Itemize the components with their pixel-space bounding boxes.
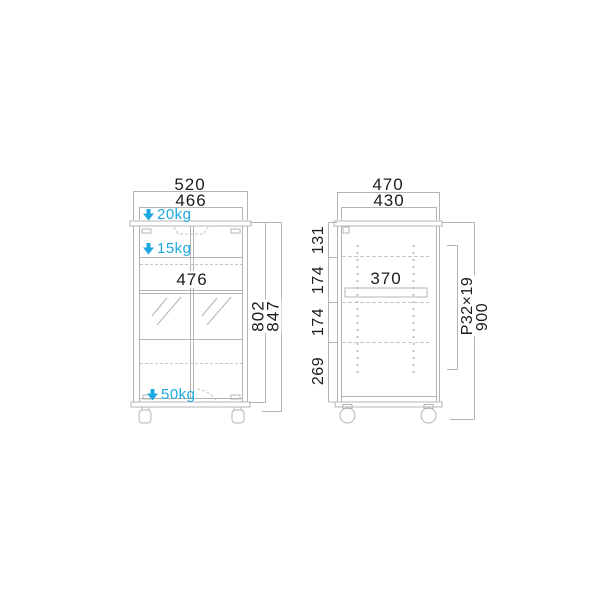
front-shelf-load-value: 15kg <box>157 241 192 256</box>
front-caster-left <box>139 407 151 423</box>
side-top-section-label: 131 <box>311 225 327 255</box>
front-shelf-load-label: 15kg <box>143 241 192 256</box>
hinge-top-right <box>231 229 240 233</box>
front-shelf-width-label: 476 <box>173 271 210 288</box>
down-arrow-icon <box>143 243 154 255</box>
side-cabinet-top-panel <box>334 221 442 226</box>
side-view-linework <box>329 193 475 420</box>
front-caster-right <box>232 407 244 423</box>
down-arrow-icon <box>143 209 154 221</box>
top-rail-detail <box>343 227 349 233</box>
cabinet-diagram-svg <box>0 0 600 600</box>
side-section-dim-lines <box>329 223 338 403</box>
down-arrow-icon <box>147 389 158 401</box>
door-swing-arc <box>197 389 217 402</box>
front-top-load-value: 20kg <box>157 207 192 222</box>
front-view-details <box>139 297 244 423</box>
side-shelf-depth-label: 370 <box>367 270 404 287</box>
side-bottom-section-label: 269 <box>311 356 327 386</box>
side-middle-section-label: 174 <box>311 307 327 337</box>
glass-hatch-right-door <box>202 297 231 325</box>
hole-pitch-dim-line <box>447 246 458 370</box>
side-upper-section-label: 174 <box>311 265 327 295</box>
side-total-height-label: 900 <box>475 302 491 332</box>
hinge-top-left <box>142 229 151 233</box>
front-total-height-label: 847 <box>265 299 282 332</box>
front-bottom-load-label: 50kg <box>147 387 196 402</box>
front-bottom-load-value: 50kg <box>161 387 196 402</box>
front-top-load-label: 20kg <box>143 207 192 222</box>
side-inner-depth-label: 430 <box>373 192 404 209</box>
diagram-canvas: 520 466 20kg 15kg 50kg 476 802 847 470 4… <box>0 0 600 600</box>
side-cabinet-body <box>338 226 440 402</box>
glass-hatch-left-door <box>152 297 181 325</box>
